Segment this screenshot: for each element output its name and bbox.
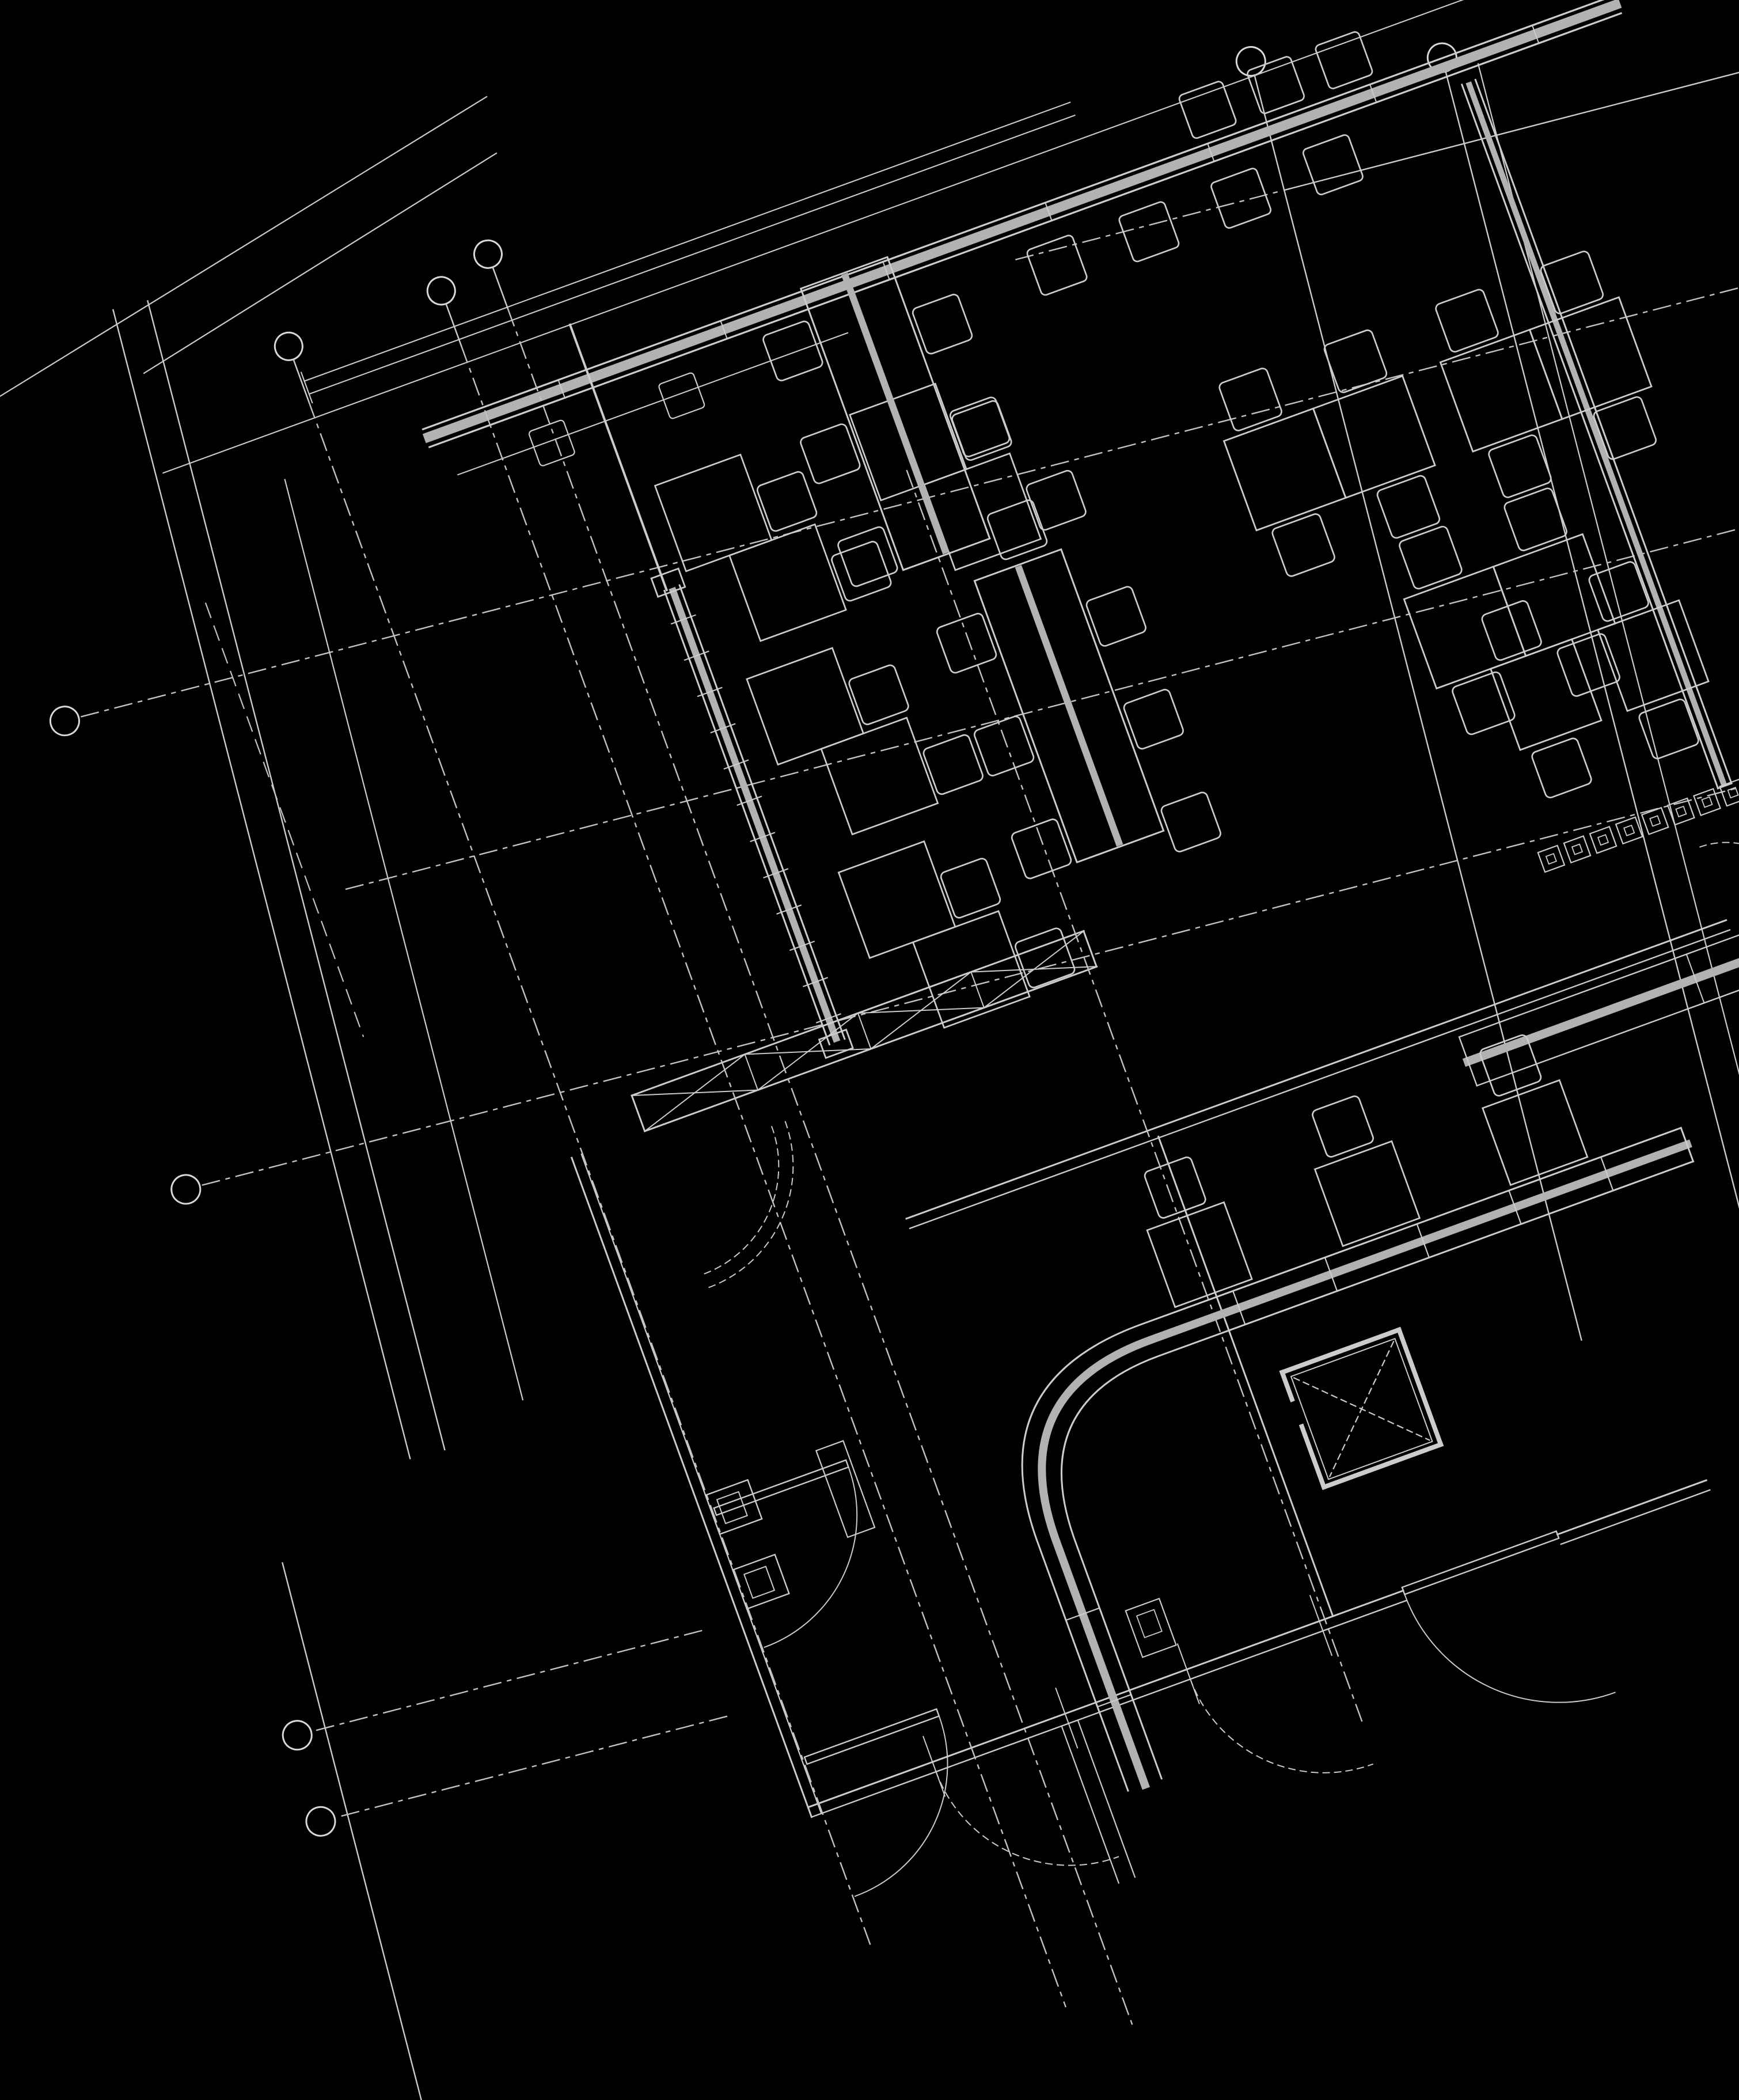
wall-line <box>1475 79 1732 783</box>
chair <box>986 499 1049 561</box>
stool <box>1302 134 1364 196</box>
door-arc <box>807 1716 988 1896</box>
site-boundary-line <box>113 310 410 1458</box>
mini-square-inner <box>1676 806 1686 817</box>
table <box>1224 408 1346 530</box>
wall-stripe <box>1470 85 1723 783</box>
site-boundary-line <box>285 480 523 1400</box>
wall-line <box>423 0 1615 429</box>
site-grid-line <box>1016 191 1281 260</box>
grid-bubble <box>470 237 506 272</box>
screen-annotations-layer <box>0 97 496 396</box>
stool <box>658 372 705 419</box>
fixture <box>732 1555 789 1609</box>
chair <box>1122 688 1184 750</box>
mini-square <box>1564 836 1590 863</box>
elevator-wall <box>1324 1445 1441 1487</box>
brace-post <box>632 1096 645 1131</box>
grid-bubble <box>303 1804 339 1839</box>
stool <box>1026 234 1088 297</box>
wall-stripe <box>429 5 1616 437</box>
grid-bubble <box>1233 44 1269 79</box>
stool <box>1210 167 1272 229</box>
grid-bubble <box>424 273 460 309</box>
grid-bubble <box>47 703 82 738</box>
chair <box>1531 737 1593 799</box>
chair <box>1218 367 1283 432</box>
stool <box>1315 31 1374 90</box>
brace-x <box>632 1054 758 1131</box>
floor-plan-canvas <box>0 0 1739 2100</box>
wall-line <box>1558 1480 1706 1534</box>
mini-square <box>1590 827 1616 853</box>
chair <box>1011 818 1073 880</box>
section-line <box>0 97 487 396</box>
grid-stem <box>493 267 508 309</box>
dim-line <box>163 0 1598 473</box>
site-boundary-line <box>1284 69 1739 190</box>
desk <box>838 841 955 958</box>
site-boundary-line <box>147 301 445 1449</box>
brace-post <box>745 1054 758 1090</box>
stool <box>1178 80 1237 139</box>
stool <box>1118 200 1180 263</box>
chair <box>1323 329 1388 394</box>
table-seam <box>1019 570 1118 843</box>
main-plan-layer <box>122 0 1739 2100</box>
table <box>1313 376 1435 498</box>
wall-line <box>1178 1644 1199 1703</box>
chair <box>1588 560 1650 623</box>
table <box>1493 534 1615 655</box>
desk <box>730 524 846 641</box>
wall-line <box>1062 1726 1119 1883</box>
chair <box>762 320 824 382</box>
elevator-wall <box>1399 1330 1441 1445</box>
grid-line <box>508 309 1132 2025</box>
chair <box>1451 671 1516 736</box>
brace-x <box>745 1013 871 1090</box>
fixture-inner <box>744 1567 774 1598</box>
wall-line <box>1561 1490 1710 1544</box>
mini-square <box>1538 846 1565 872</box>
site-boundary-line <box>283 1563 458 2100</box>
table <box>1404 567 1525 688</box>
grid-bubble <box>280 1718 315 1753</box>
mini-square-inner <box>1572 844 1582 855</box>
wall-line <box>430 13 1621 447</box>
blueprint-viewport <box>0 0 1739 2100</box>
chair <box>1376 475 1441 540</box>
desk <box>655 454 772 571</box>
door-arc <box>1404 1538 1615 1749</box>
wall-line <box>923 1737 945 1796</box>
shelf <box>816 1441 875 1537</box>
door-arc-dashed <box>663 1122 829 1288</box>
chair <box>1638 698 1700 760</box>
site-grid-line <box>81 271 1739 717</box>
chair <box>1503 487 1568 552</box>
grid-line <box>907 471 1362 1721</box>
door-leaf <box>804 1709 939 1764</box>
chair <box>1480 600 1543 662</box>
grid-bubble <box>168 1172 203 1207</box>
door-arc-dashed <box>1699 821 1739 920</box>
site-grid-line <box>342 1716 727 1816</box>
fixture-inner <box>717 1492 747 1523</box>
wall-line <box>582 1154 822 1814</box>
brace-x <box>971 931 1097 1008</box>
chair <box>1160 791 1222 853</box>
grid-line <box>309 401 871 1949</box>
chair <box>1271 513 1336 578</box>
mini-square-inner <box>1546 854 1556 864</box>
dim-line <box>301 373 312 403</box>
chair <box>1434 288 1499 353</box>
table <box>1440 329 1562 451</box>
fixture-inner <box>1137 1610 1162 1638</box>
site-grid-line <box>317 1630 704 1730</box>
banquette-seat <box>979 1128 1739 1791</box>
elevator-wall <box>1282 1330 1399 1373</box>
chair <box>1085 585 1147 647</box>
chair <box>799 423 861 485</box>
door-arc <box>716 1467 897 1647</box>
mini-square-inner <box>1624 825 1634 836</box>
wall-line <box>1477 914 1739 1086</box>
chair <box>1398 525 1463 590</box>
wall-line <box>572 1158 812 1817</box>
fixture <box>705 1480 762 1534</box>
chair <box>1311 1095 1375 1158</box>
brace-post <box>971 972 984 1008</box>
wall-stripe <box>673 592 836 1038</box>
door-leaf <box>714 1460 849 1515</box>
mini-square-inner <box>1650 816 1660 826</box>
brace-post <box>858 1013 871 1049</box>
chair <box>912 293 974 355</box>
desk <box>821 718 938 835</box>
desk <box>747 648 864 765</box>
chair <box>1487 434 1552 499</box>
stool <box>1246 55 1305 115</box>
column <box>819 1030 853 1058</box>
site-grid-line <box>203 740 1739 1185</box>
fixture <box>1126 1598 1176 1657</box>
table-seam <box>846 277 945 550</box>
section-line <box>144 153 496 373</box>
mini-square <box>1616 817 1642 844</box>
grid-bubble <box>271 329 307 365</box>
stool <box>528 419 575 467</box>
mini-square-inner <box>1598 835 1608 845</box>
chair <box>936 612 998 674</box>
door-leaf <box>1402 1531 1559 1594</box>
column <box>651 568 685 597</box>
door-arc-dashed <box>663 1127 811 1274</box>
mini-square-inner <box>1702 797 1713 808</box>
wall-line <box>1462 85 1718 789</box>
wall-line <box>1159 1136 1333 1616</box>
